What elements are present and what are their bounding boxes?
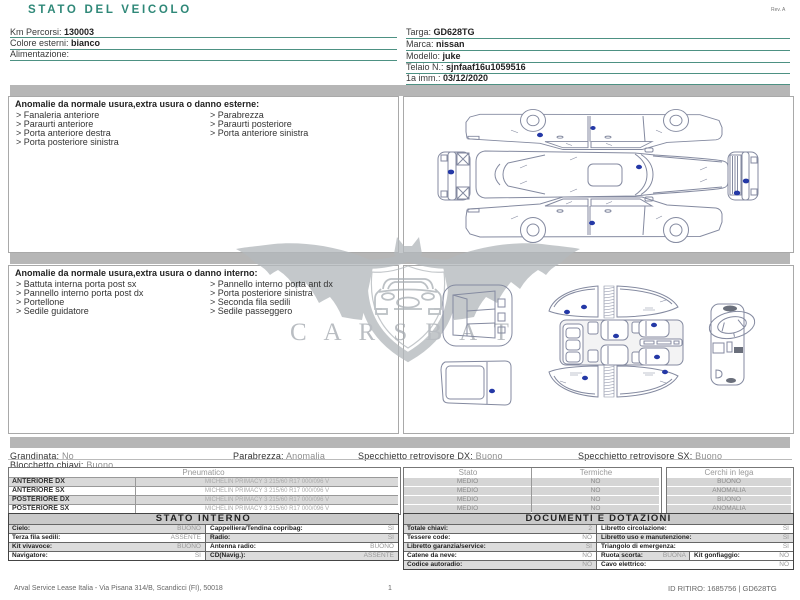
svg-text:C A R S B A T: C A R S B A T <box>290 319 515 346</box>
